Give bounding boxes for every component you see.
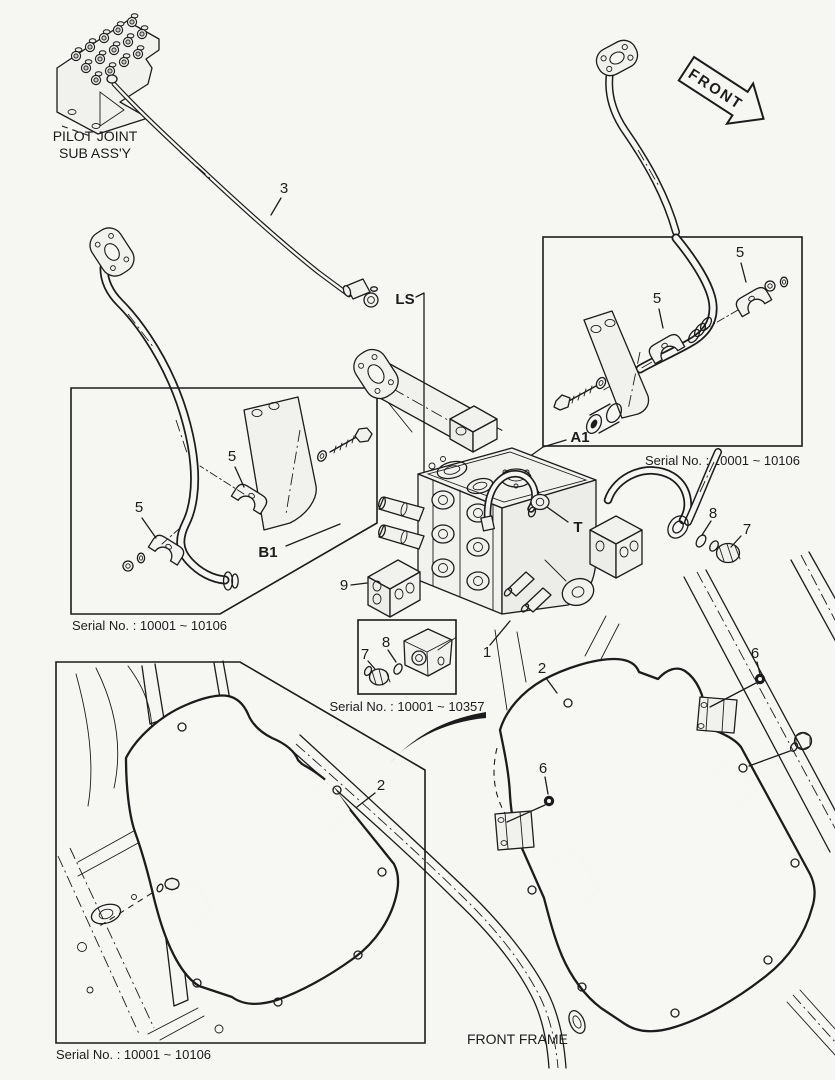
port-label-t: T <box>573 519 582 536</box>
pilot-joint-label-line1: PILOT JOINT <box>53 128 138 144</box>
leader-8-inset <box>388 650 396 662</box>
serial-note-cover: Serial No. : 10001 ~ 10106 <box>56 1047 211 1062</box>
ref-label-a1: A1 <box>570 429 589 446</box>
leader-6-top <box>757 662 760 674</box>
callout-5-a1-left: 5 <box>653 290 661 307</box>
control-valve: 1 T <box>378 448 598 661</box>
serial-note-plug: Serial No. : 10001 ~ 10357 <box>329 699 484 714</box>
return-pipe-upper <box>592 36 676 232</box>
bracket-top <box>697 697 737 733</box>
callout-6-left: 6 <box>539 760 547 777</box>
block-right <box>590 516 642 578</box>
leader-1 <box>490 621 510 645</box>
plug-inset-block <box>404 629 455 676</box>
callout-9: 9 <box>340 577 348 594</box>
serial-note-a1: Serial No. : 10001 ~ 10106 <box>645 453 800 468</box>
block-9: 9 <box>340 560 420 617</box>
callout-5-b1-lower: 5 <box>135 499 143 516</box>
swoosh-arrow <box>390 712 486 763</box>
leader-5-b1-lower <box>142 518 156 538</box>
cover-left-inset-box: 2 Serial No. : 10001 ~ 10106 <box>56 661 425 1062</box>
leader-8-right <box>702 521 711 535</box>
hose-elbow-fitting <box>342 279 378 307</box>
leader-5-a1-left <box>659 309 663 328</box>
leader-5-b1-upper <box>235 467 244 487</box>
nut-6-top <box>755 674 765 684</box>
plug-inset-box: 7 8 Serial No. : 10001 ~ 10357 <box>329 620 484 714</box>
callout-7-inset: 7 <box>361 646 369 663</box>
cover-plate-left <box>98 695 398 1006</box>
callout-8-right: 8 <box>709 505 717 522</box>
cover-plate-right: 2 <box>494 659 814 1031</box>
leader-3 <box>271 198 281 215</box>
o-ring-8-inset <box>392 662 404 675</box>
bracket-left <box>495 811 534 850</box>
serial-note-b1: Serial No. : 10001 ~ 10106 <box>72 618 227 633</box>
plug-7-inset <box>363 665 390 685</box>
front-frame-label: FRONT FRAME <box>467 1031 568 1047</box>
nut-washer-b1 <box>123 553 145 571</box>
nut-6-left <box>544 796 554 806</box>
callout-5-b1-upper: 5 <box>228 448 236 465</box>
leader-9 <box>351 583 367 585</box>
callout-7-right: 7 <box>743 521 751 538</box>
pilot-hose-3: 3 <box>107 75 378 307</box>
callout-3: 3 <box>280 180 288 197</box>
bolt-a1 <box>554 376 607 410</box>
parts-diagram-page: PILOT JOINT SUB ASS'Y 3 FRONT <box>0 0 835 1080</box>
callout-1: 1 <box>483 644 491 661</box>
nut-washer-a1 <box>765 277 788 291</box>
callout-5-a1-right: 5 <box>736 244 744 261</box>
pilot-joint-assembly: PILOT JOINT SUB ASS'Y <box>53 14 159 161</box>
front-frame-hole <box>566 1008 589 1036</box>
leader-7-right <box>731 536 741 547</box>
leader-b1 <box>286 524 340 546</box>
bolt-b1 <box>316 428 372 463</box>
parts-diagram-svg: PILOT JOINT SUB ASS'Y 3 FRONT <box>0 0 835 1080</box>
callout-8-inset: 8 <box>382 634 390 651</box>
callout-2-right: 2 <box>538 660 546 677</box>
ref-label-b1: B1 <box>258 544 277 561</box>
inset-box-a1: 5 5 A1 Serial No. : 10001 ~ 10106 <box>494 237 802 482</box>
valve-left-fittings <box>378 496 424 549</box>
o-ring-8-right <box>694 533 708 548</box>
leader-5-a1-right <box>741 263 746 282</box>
port-label-ls: LS <box>395 291 414 308</box>
callout-6-top: 6 <box>751 645 759 662</box>
pipe-flange-top-right <box>592 36 642 80</box>
pipe-flange-top-left <box>85 223 140 282</box>
callout-2-left: 2 <box>377 777 385 794</box>
pilot-joint-label-line2: SUB ASS'Y <box>59 145 132 161</box>
front-arrow: FRONT <box>673 49 776 139</box>
bolt-right <box>749 733 812 767</box>
